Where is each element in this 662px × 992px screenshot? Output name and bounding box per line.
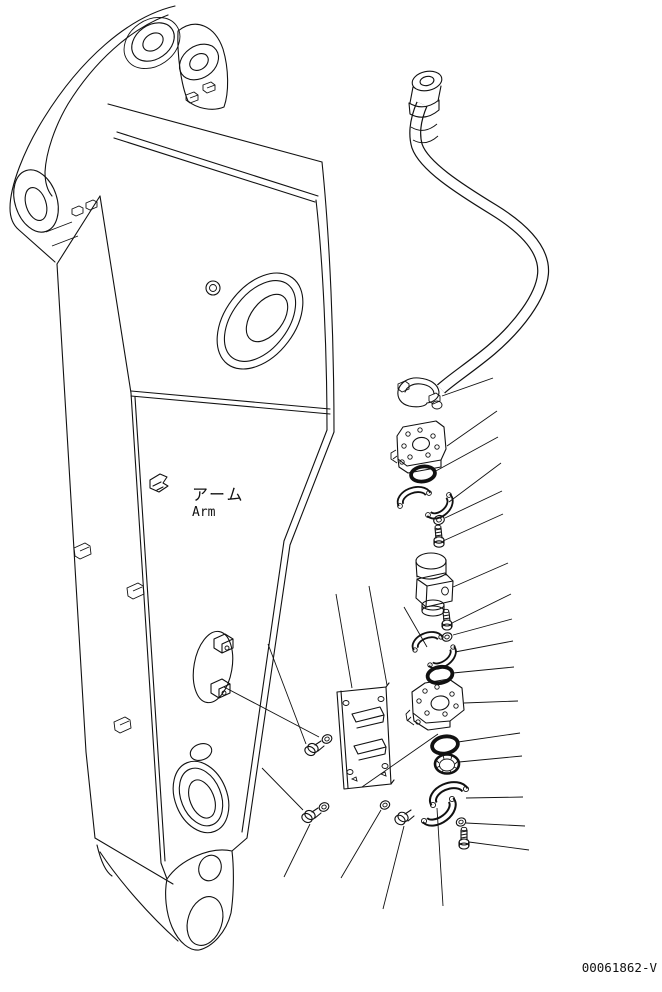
relief-valve-block [416, 553, 453, 616]
split-flange-pair-upper [398, 489, 452, 517]
hydraulic-hose [409, 69, 543, 389]
arm-mid-boss [200, 257, 321, 385]
bolt-bracket-3 [393, 810, 414, 827]
arm-label-en: Arm [192, 505, 216, 520]
hose-clip [74, 543, 91, 559]
diagram-canvas: アーム Arm 00061862-V [0, 0, 662, 992]
washer-mid [441, 631, 453, 642]
drawing-number: 00061862-V [582, 960, 658, 975]
bolt-bottom [459, 827, 469, 849]
valve-mount-plate-lower [406, 679, 464, 730]
mounting-bracket-plate [337, 683, 394, 789]
parts-diagram-page: アーム Arm 00061862-V [0, 0, 662, 992]
arm-pointer-icon [150, 474, 168, 492]
bolt-upper [434, 525, 444, 547]
arm-callout: アーム Arm [150, 474, 245, 520]
arm-lower-boss [163, 741, 239, 841]
arm-top-boss [124, 15, 181, 69]
split-flange-pair-mid [413, 635, 455, 668]
valve-mount-plate-upper [391, 421, 446, 473]
washer-bracket-1 [321, 733, 334, 745]
bolt-bracket-1 [303, 741, 324, 757]
parts-column [391, 378, 469, 849]
ribbed-seal-ring [435, 755, 459, 775]
washer-bracket-2 [318, 801, 331, 813]
arm-left-boss [6, 164, 66, 238]
arm-bucket-end [166, 850, 234, 950]
arm-label-jp: アーム [192, 485, 245, 504]
washer-bracket-3 [379, 799, 391, 810]
arm-link-boss [173, 37, 226, 87]
hose-clip [114, 717, 131, 733]
o-ring-lower [431, 734, 460, 755]
bolt-bracket-2 [300, 808, 321, 824]
hose-clip [127, 583, 144, 599]
washer-bottom [455, 817, 467, 828]
arm-valve-mounting-pad [188, 628, 238, 706]
excavator-arm [6, 6, 334, 950]
o-ring-upper [410, 465, 436, 483]
hose-end-split-flange [398, 378, 442, 409]
arm-grommet [206, 281, 220, 295]
bolt-mid [442, 609, 452, 630]
